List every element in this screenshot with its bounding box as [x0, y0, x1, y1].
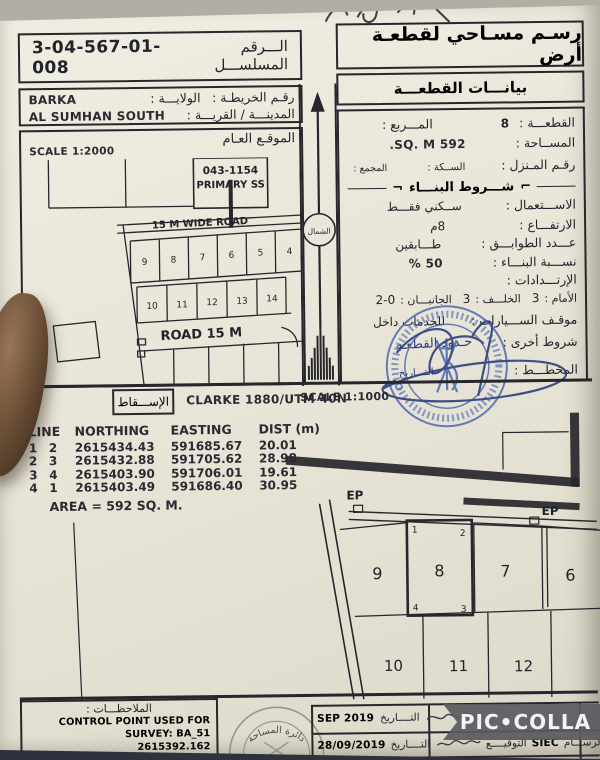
- road-top-label: 15 M WIDE ROAD: [152, 216, 249, 232]
- city-value: AL SUMHAN SOUTH: [29, 109, 165, 125]
- watermark-banner: PIC•COLLA: [443, 704, 600, 740]
- survey-date-value: SEP 2019: [317, 712, 374, 725]
- use-label: الاســـتعمال :: [506, 197, 576, 213]
- wilaya-value: BARKA: [28, 93, 76, 108]
- overview-scale-label: SCALE 1:2000: [29, 145, 114, 158]
- city-label: المدينـــة / القريـــة :: [187, 106, 295, 122]
- overview-plot-13: 13: [236, 297, 248, 307]
- drafting-date-label: التــــاريخ: [391, 738, 431, 750]
- building-conditions-heading: ⌐: [520, 179, 531, 194]
- wilaya-label: الولايـــة :: [150, 90, 200, 106]
- overview-plot-6: 6: [229, 251, 235, 261]
- overview-plot-8: 8: [171, 255, 177, 265]
- detail-plot-10: 10: [384, 657, 403, 675]
- general-location-label: الموقـع العـام: [222, 131, 295, 147]
- corner-3: 3: [461, 605, 467, 615]
- location-info-box: رقـم الخريطـة : الولايـــة : BARKA المدي…: [18, 85, 302, 126]
- overview-plot-11: 11: [176, 300, 188, 310]
- house-number-label: رقـم المـنزل :: [501, 157, 575, 173]
- detail-plot-6: 6: [565, 566, 575, 585]
- watermark-text: PIC•COLLA: [452, 710, 591, 734]
- building-conditions-label: شـــروط البنـــاء: [409, 179, 514, 195]
- general-location-map-box: الموقـع العـام SCALE 1:2000 0: [19, 127, 306, 388]
- serial-number-label: الـــرقم المسلســـل: [177, 37, 288, 74]
- north-label: الشمال: [308, 227, 331, 236]
- projection-label: الإســـقاط: [117, 395, 169, 410]
- square-label: المـــربع :: [382, 116, 433, 132]
- corner-1: 1: [412, 526, 418, 536]
- overview-plot-9: 9: [142, 258, 148, 268]
- overview-plot-7: 7: [200, 253, 206, 263]
- overview-map-drawing: 043-1154 PRIMARY SS 15 M WIDE ROAD 9 8 7…: [21, 157, 304, 386]
- north-arrow-column: الشمال: [298, 84, 340, 386]
- detail-plot-11: 11: [449, 657, 468, 675]
- serial-number-box: 3-04-567-01-008 الـــرقم المسلســـل: [18, 30, 303, 83]
- floors-label: عـــدد الطوابـــق :: [481, 235, 576, 251]
- height-value: 8م: [430, 219, 445, 233]
- overview-plot-14: 14: [266, 294, 278, 304]
- road-bottom-label: ROAD 15 M: [160, 325, 242, 344]
- survey-dept-stamp-text: دائرة المساحة: [245, 724, 307, 745]
- overview-plot-5: 5: [258, 248, 264, 258]
- divider: [537, 186, 576, 187]
- setbacks-label: الإرتـــدادات :: [507, 272, 577, 288]
- detail-plot-7: 7: [500, 561, 510, 580]
- detail-map-drawing: EP EP 1 2 3 4 9 8 7 6 10 11 12: [0, 404, 600, 703]
- overview-plot-12: 12: [206, 298, 218, 308]
- detail-plot-9: 9: [372, 564, 382, 583]
- divider: [348, 188, 387, 189]
- map-number-label: رقـم الخريطـة :: [212, 89, 295, 105]
- photo-of-survey-document: 3-04-567-01-008 الـــرقم المسلســـل رقـم…: [0, 0, 600, 760]
- complex-label: المجمع :: [353, 163, 387, 174]
- build-ratio-label: نســـبة البنـــاء :: [493, 254, 577, 270]
- height-label: الارتفـــاع :: [519, 217, 576, 233]
- notes-box: الملاحظـــات : CONTROL POINT USED FOR SU…: [20, 698, 219, 760]
- overview-plot-4: 4: [287, 247, 293, 257]
- survey-date-label: التــــاريخ: [380, 712, 420, 724]
- overview-plot-10: 10: [146, 302, 158, 312]
- control-point-line: CONTROL POINT USED FOR SURVEY: BA_51: [28, 714, 210, 742]
- street-label: الســكة :: [427, 162, 465, 173]
- substation-type: PRIMARY SS: [196, 179, 264, 191]
- detail-scale-label: SCALE 1:1000: [300, 390, 389, 404]
- subtitle-box: بيانـــات القطعـــة: [336, 71, 584, 106]
- svg-text:دائرة المساحة: دائرة المساحة: [245, 724, 307, 745]
- electric-pole-label-1: EP: [346, 488, 363, 502]
- detail-plot-12: 12: [514, 657, 533, 675]
- build-ratio-value: 50 %: [409, 256, 443, 270]
- substation-id: 043-1154: [203, 164, 259, 177]
- detail-plot-8: 8: [434, 561, 444, 580]
- drafting-date-value: 28/09/2019: [317, 739, 385, 752]
- area-label: المســاحة :: [516, 135, 576, 151]
- plot-number-label: القطعـــة :: [519, 115, 575, 131]
- plot-data-heading: بيانـــات القطعـــة: [394, 78, 528, 98]
- corner-4: 4: [413, 604, 419, 614]
- floors-value: طـــابقين: [395, 237, 441, 252]
- use-value: ســكني فقـــط: [387, 199, 462, 214]
- corner-2: 2: [460, 529, 466, 539]
- area-value: 592 SQ. M.: [389, 137, 465, 152]
- plot-number-value: 8: [501, 116, 510, 130]
- building-conditions-heading-end: ¬: [392, 181, 403, 196]
- serial-number-value: 3-04-567-01-008: [32, 36, 178, 78]
- electric-pole-label-2: EP: [542, 504, 559, 518]
